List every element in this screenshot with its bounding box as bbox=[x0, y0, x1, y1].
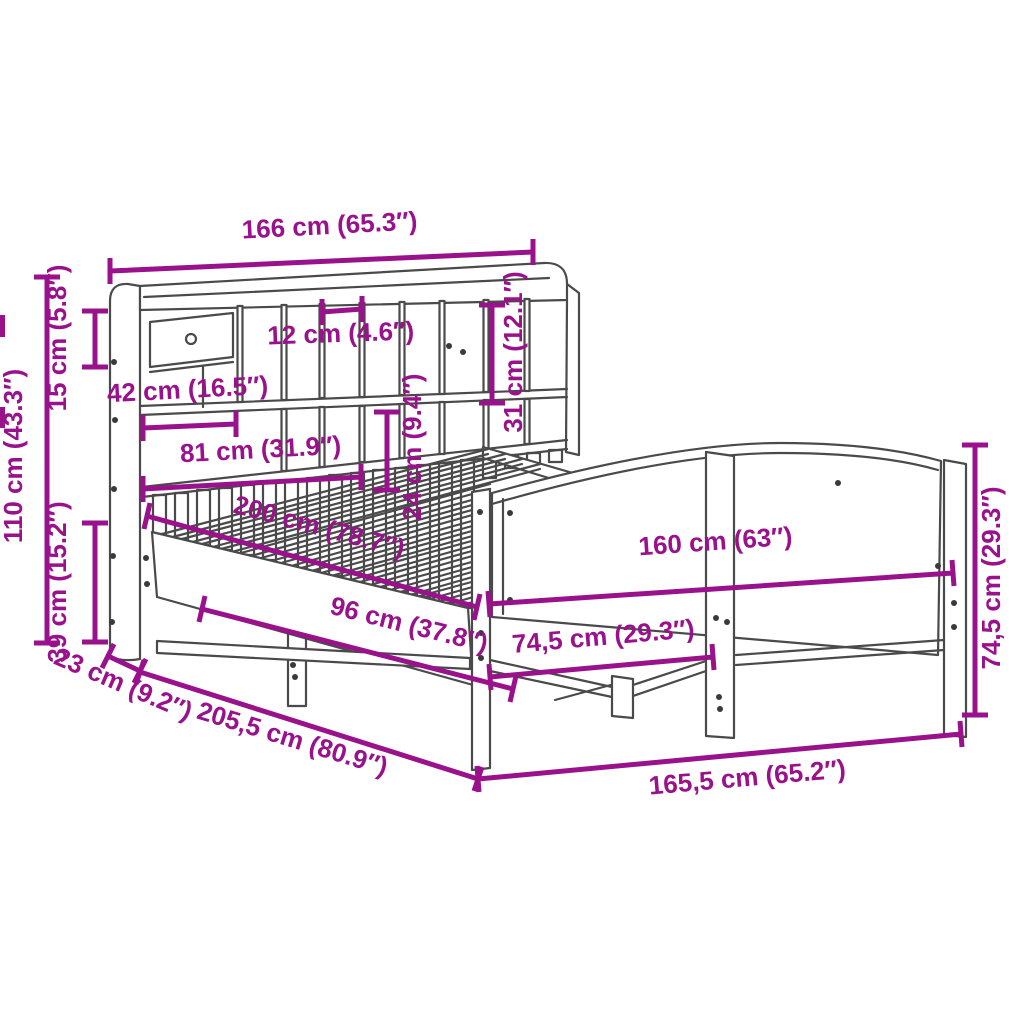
footboard-right-leg bbox=[944, 460, 966, 737]
dim-slat-section-width-label: 81 cm (31.9″) bbox=[179, 430, 342, 468]
dim-footboard-height-label: 74,5 cm (29.3″) bbox=[976, 486, 1006, 669]
dim-overall-width-label: 166 cm (65.3″) bbox=[241, 205, 418, 244]
bed-diagram-svg: 166 cm (65.3″) 15 cm (5.8″) 110 cm (43.3… bbox=[0, 0, 1024, 1024]
dimension-diagram: 166 cm (65.3″) 15 cm (5.8″) 110 cm (43.3… bbox=[0, 0, 1024, 1024]
headboard-drawer bbox=[150, 313, 233, 367]
dim-headboard-height-label: 110 cm (43.3″) bbox=[0, 369, 28, 543]
dimension-footboard-height: 74,5 cm (29.3″) bbox=[962, 445, 1006, 715]
footboard bbox=[472, 443, 966, 770]
headboard-right-edge bbox=[566, 284, 579, 455]
dim-row2-height-label: 24 cm (9.4″) bbox=[397, 374, 427, 521]
foot-stretcher-mid bbox=[633, 661, 706, 696]
dim-overall-length-label: 205,5 cm (80.9″) bbox=[194, 695, 392, 781]
headboard-left-post bbox=[110, 284, 140, 660]
dimension-shelf-top: 15 cm (5.8″) bbox=[42, 265, 108, 412]
dimension-frame-height: 39 cm (15.2″) bbox=[42, 501, 108, 662]
support-leg-front bbox=[612, 676, 633, 718]
dimension-overall-length: 205,5 cm (80.9″) bbox=[136, 660, 482, 791]
cubby-dividers-row1 bbox=[238, 299, 530, 402]
dim-frame-height-label: 39 cm (15.2″) bbox=[42, 501, 72, 662]
dim-cubby-width-label: 12 cm (4.6″) bbox=[267, 315, 415, 350]
dim-row1-height-label: 31 cm (12.1″) bbox=[498, 271, 528, 432]
